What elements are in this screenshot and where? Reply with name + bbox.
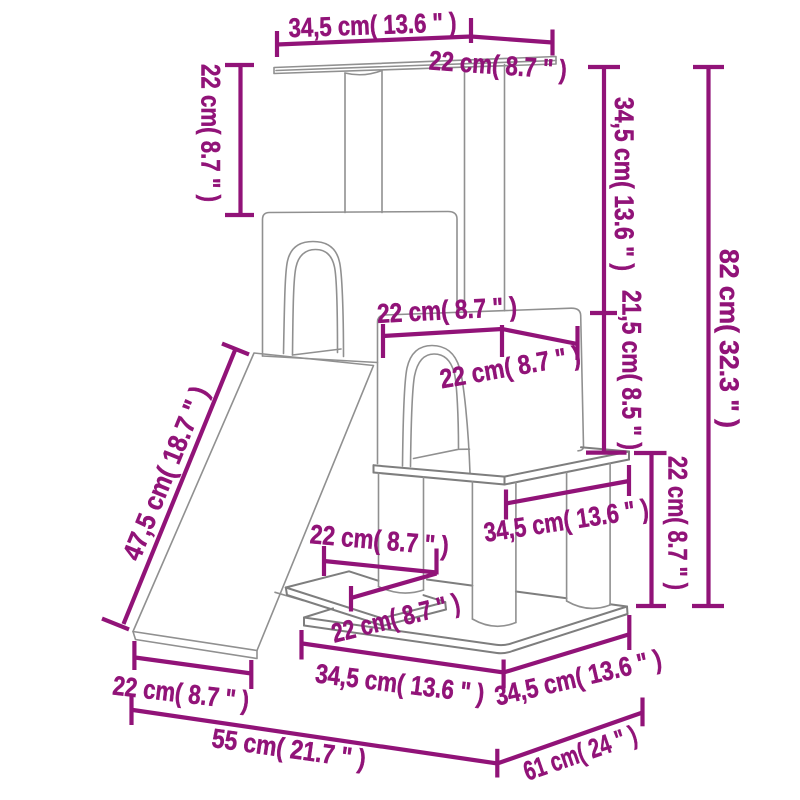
svg-text:22 cm( 8.7 " ): 22 cm( 8.7 " )	[662, 456, 692, 590]
svg-text:34,5 cm( 13.6 " ): 34,5 cm( 13.6 " )	[288, 7, 457, 43]
svg-text:34,5 cm( 13.6 " ): 34,5 cm( 13.6 " )	[609, 97, 639, 271]
svg-text:21,5 cm( 8.5 " ): 21,5 cm( 8.5 " )	[616, 290, 646, 450]
svg-text:82 cm( 32.3 " ): 82 cm( 32.3 " )	[714, 249, 744, 428]
svg-text:22 cm( 8.7 " ): 22 cm( 8.7 " )	[195, 64, 225, 202]
